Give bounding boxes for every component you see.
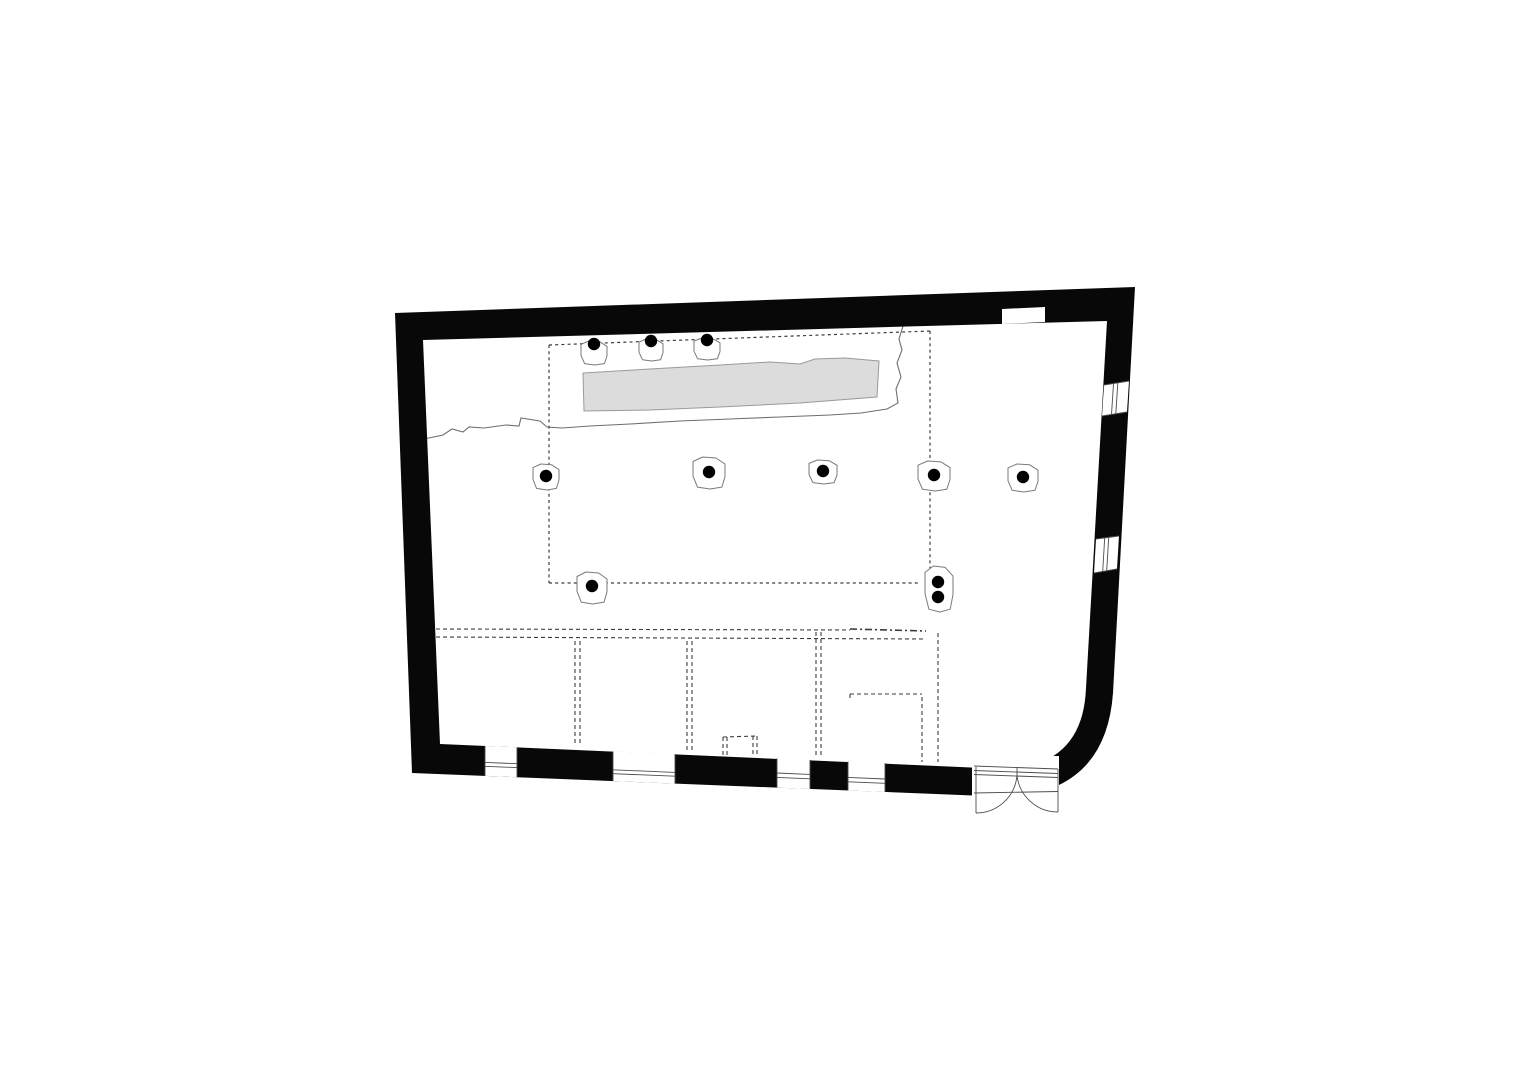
window-gap [485, 746, 517, 777]
column-dot [540, 470, 552, 482]
column-marker [693, 457, 725, 489]
window-gap [613, 751, 675, 783]
window-opening [1102, 381, 1129, 416]
column-dot [932, 576, 944, 588]
wall-niche [1002, 307, 1045, 324]
column-dot [701, 334, 713, 346]
window-opening [485, 746, 517, 777]
column-marker [918, 461, 950, 491]
column-marker [809, 460, 837, 484]
background [0, 0, 1528, 1080]
column-dot [588, 338, 600, 350]
column-dot [932, 591, 944, 603]
window-opening [613, 751, 675, 783]
window-gap [848, 762, 885, 793]
column-marker [533, 464, 559, 490]
column-dot [703, 466, 715, 478]
door-gap [972, 756, 1059, 806]
column-marker [577, 572, 607, 604]
floor-plan-svg [0, 0, 1528, 1080]
column-dot [1017, 471, 1029, 483]
column-dot [928, 469, 940, 481]
window-gap [1102, 381, 1129, 416]
column-marker [1008, 464, 1038, 492]
floor-plan-canvas [0, 0, 1528, 1080]
window-opening [848, 762, 885, 793]
window-opening [1094, 536, 1119, 573]
window-opening [777, 758, 810, 789]
double-column-marker [925, 566, 953, 612]
column-dot [817, 465, 829, 477]
column-dot [586, 580, 598, 592]
column-dot [645, 335, 657, 347]
column-base [925, 566, 953, 612]
